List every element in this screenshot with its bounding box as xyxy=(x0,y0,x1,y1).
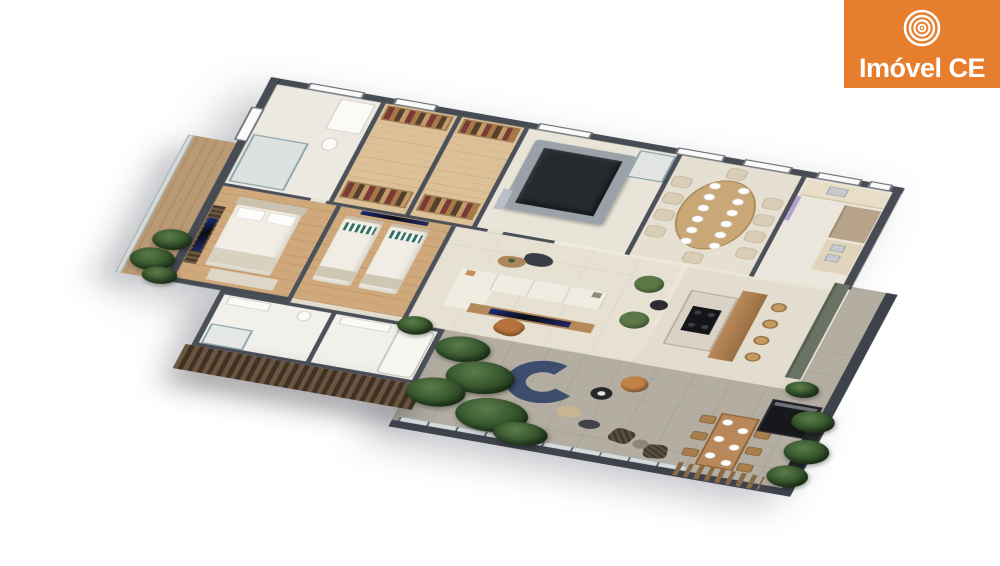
brand-label: Imóvel CE xyxy=(859,53,985,83)
floorplan-scene xyxy=(60,69,951,504)
concentric-circles-icon xyxy=(902,8,942,53)
brand-badge: Imóvel CE xyxy=(844,0,1000,88)
